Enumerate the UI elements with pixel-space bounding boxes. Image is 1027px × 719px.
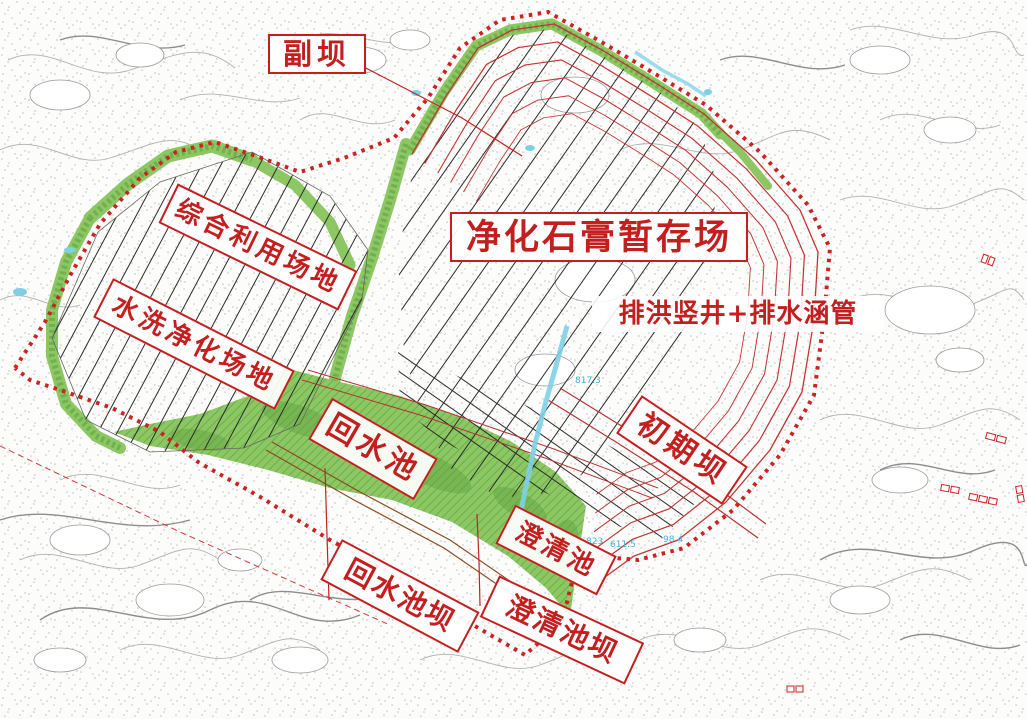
elevation-mark-2: 611.5 — [610, 540, 636, 550]
site-plan-map: 817.3 823 611.5 98.4 副坝 净化石膏暂存场 排洪竖井+排水涵… — [0, 0, 1027, 719]
label-flood-shaft-culvert: 排洪竖井+排水涵管 — [592, 296, 884, 332]
label-gypsum-storage-site: 净化石膏暂存场 — [450, 212, 748, 262]
elevation-mark-3: 98.4 — [663, 535, 683, 545]
label-auxiliary-dam: 副坝 — [268, 34, 366, 74]
elevation-mark-0: 817.3 — [575, 376, 601, 386]
